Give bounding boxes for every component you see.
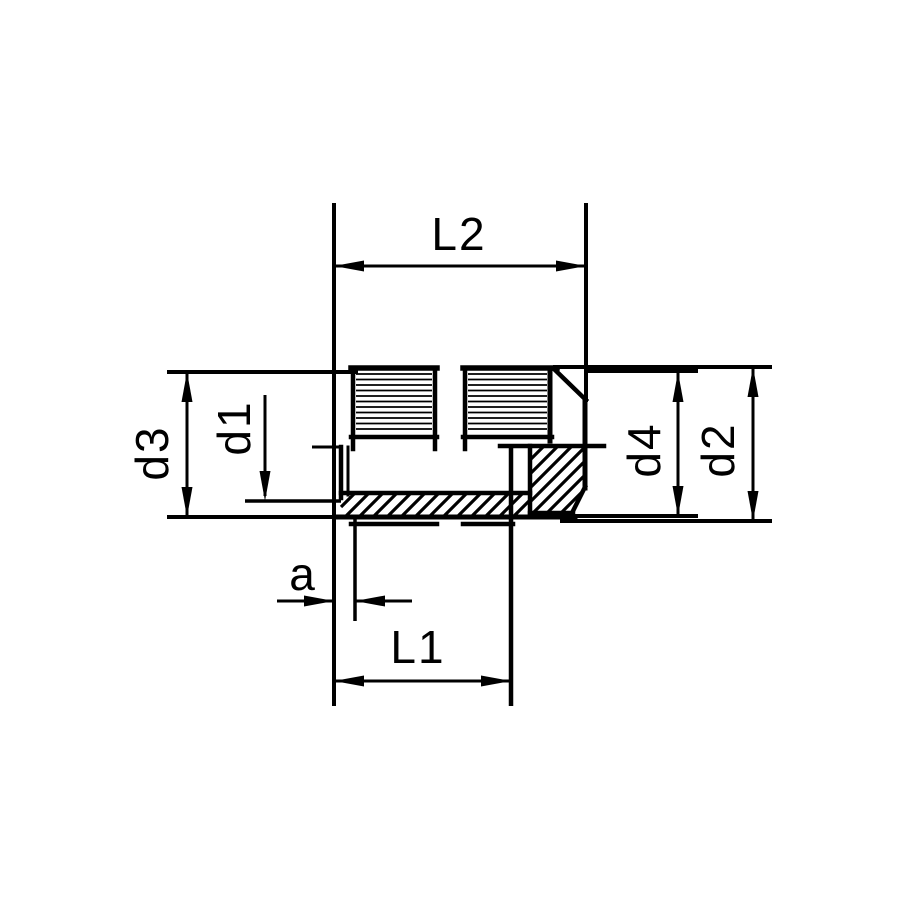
drawing-page: L2 d3 d1 d4 d2 a xyxy=(0,0,912,912)
arrowhead-right-icon xyxy=(481,676,511,687)
arrowhead-down-icon xyxy=(673,486,684,516)
arrowhead-down-icon xyxy=(748,491,759,521)
dimension-a: a xyxy=(277,548,412,607)
arrowhead-up-icon xyxy=(182,372,193,402)
dimension-label-d4: d4 xyxy=(618,422,670,477)
arrowhead-right-icon xyxy=(556,261,586,272)
dimension-label-d1: d1 xyxy=(208,400,260,455)
dimension-d4: d4 xyxy=(575,371,698,516)
dimension-label-l1: L1 xyxy=(390,621,445,673)
section-hatch-wall xyxy=(341,493,530,517)
dimension-label-d2: d2 xyxy=(692,422,744,477)
dimension-label-d3: d3 xyxy=(126,425,178,480)
arrowhead-down-icon xyxy=(182,487,193,517)
knurl-band-1 xyxy=(356,374,432,429)
dimension-label-l2: L2 xyxy=(431,208,486,260)
technical-drawing-canvas: L2 d3 d1 d4 d2 a xyxy=(0,0,912,912)
knurl-band-2 xyxy=(468,374,547,429)
chamfer-edge xyxy=(554,369,586,400)
arrowhead-up-icon xyxy=(748,367,759,397)
arrowhead-left-icon xyxy=(334,261,364,272)
arrowhead-up-icon xyxy=(673,372,684,402)
arrowhead-down-icon xyxy=(260,471,271,501)
dimension-l2: L2 xyxy=(334,208,586,272)
dimension-label-a: a xyxy=(289,548,317,600)
arrowhead-left-icon xyxy=(355,596,385,607)
dimension-l1: L1 xyxy=(334,621,511,687)
arrowhead-left-icon xyxy=(334,676,364,687)
